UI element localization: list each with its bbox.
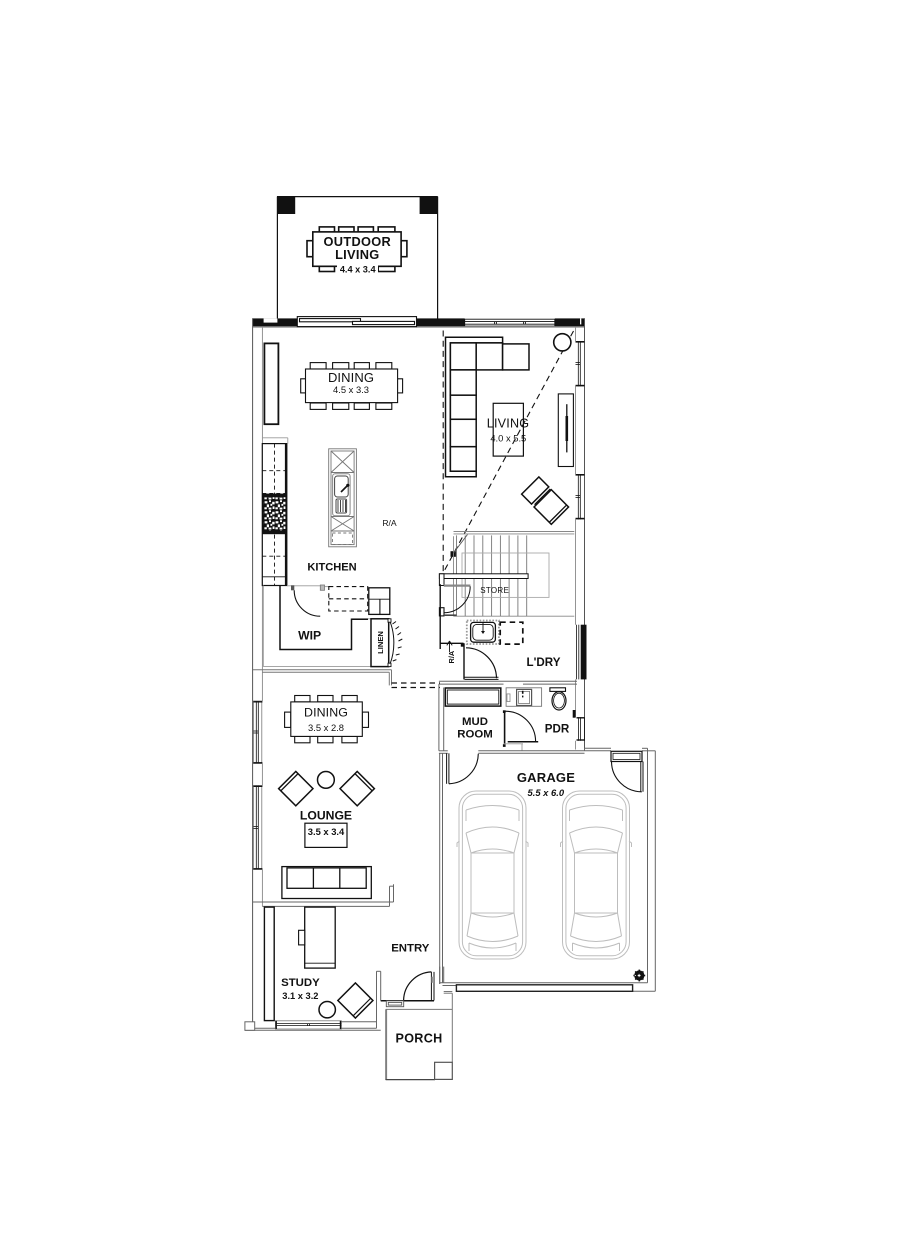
svg-text:GARAGE: GARAGE: [517, 770, 575, 785]
svg-text:3.1 x 3.2: 3.1 x 3.2: [282, 991, 318, 1001]
svg-text:STORE: STORE: [480, 586, 509, 595]
svg-text:KITCHEN: KITCHEN: [307, 561, 356, 573]
svg-text:PORCH: PORCH: [396, 1031, 443, 1045]
svg-text:LIVING: LIVING: [487, 417, 530, 431]
svg-text:DINING: DINING: [304, 706, 348, 720]
svg-text:4.4 x 3.4: 4.4 x 3.4: [340, 265, 377, 275]
svg-text:LOUNGE: LOUNGE: [300, 809, 352, 823]
svg-text:R/A: R/A: [447, 650, 456, 663]
svg-text:ENTRY: ENTRY: [391, 942, 430, 954]
svg-text:DINING: DINING: [328, 370, 374, 385]
svg-text:3.5 x 3.4: 3.5 x 3.4: [308, 826, 345, 837]
svg-text:4.5 x 3.3: 4.5 x 3.3: [333, 384, 369, 395]
svg-text:MUD: MUD: [462, 716, 488, 728]
svg-text:3.5 x 2.8: 3.5 x 2.8: [308, 722, 344, 733]
svg-text:5.5 x 6.0: 5.5 x 6.0: [528, 787, 565, 798]
svg-text:PDR: PDR: [545, 723, 570, 736]
svg-text:4.0 x 5.5: 4.0 x 5.5: [490, 433, 526, 444]
svg-text:STUDY: STUDY: [281, 977, 320, 989]
svg-text:R/A: R/A: [382, 518, 397, 528]
svg-text:L'DRY: L'DRY: [527, 656, 561, 669]
svg-text:LIVING: LIVING: [335, 247, 379, 262]
svg-text:WIP: WIP: [298, 628, 321, 642]
svg-text:LINEN: LINEN: [376, 631, 385, 654]
svg-text:ROOM: ROOM: [457, 728, 492, 740]
